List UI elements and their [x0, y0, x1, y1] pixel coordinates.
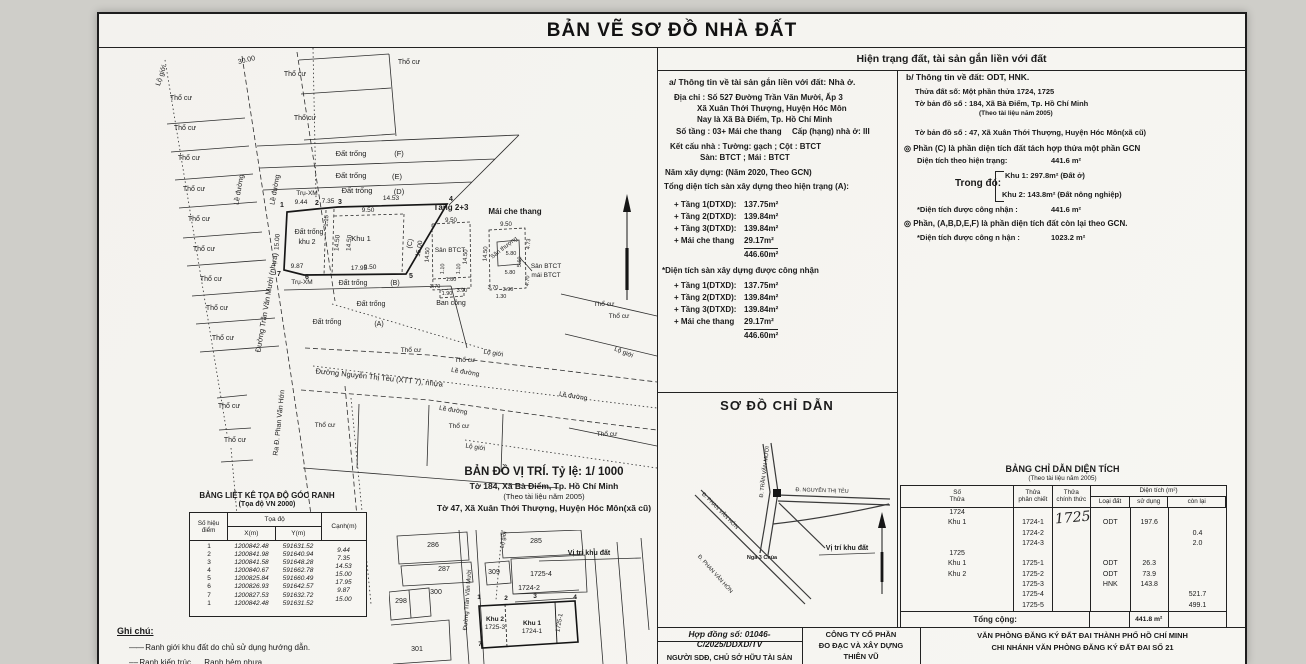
address-line-1: Địa chỉ : Số 527 Đường Trần Văn Mười, Ấp…: [674, 93, 843, 102]
floor-value: 137.75m²: [744, 281, 778, 293]
map-label: 9.50: [500, 222, 512, 228]
coord-row: 11200842.48591631.529.44: [190, 543, 366, 551]
map-label: Khu 1: [523, 620, 541, 627]
coord-cell: 1200842.48: [228, 600, 275, 608]
map-label: 5.80: [506, 251, 517, 257]
map-label: Đường Trần Văn Mười (nhựa): [253, 252, 279, 353]
map-label: 14.50: [482, 246, 489, 262]
area-table-row: 1725-3HNK143.8: [901, 580, 1226, 590]
floor-label: + Tầng 1(DTXD):: [674, 200, 744, 212]
map-label: Thổ cư: [193, 245, 216, 253]
area-table-cell: HNK: [1091, 580, 1130, 590]
map-label: 3.70: [488, 285, 499, 291]
khu2-detail: Khu 2: 143.8m² (Đất nông nghiệp): [1002, 190, 1122, 199]
map-label: mái BTCT: [531, 272, 560, 279]
area-table-subtitle: (Theo tài liệu năm 2005): [900, 475, 1225, 482]
map-label: Lề đường: [451, 365, 481, 378]
map-label: Thổ cư: [224, 436, 247, 444]
map-label: 286: [427, 542, 439, 549]
floor-value: 139.84m²: [744, 305, 778, 317]
map-label: Thổ cư: [398, 58, 421, 66]
map-label: (E): [392, 172, 403, 181]
map-label: 3.90: [457, 288, 468, 294]
map-label: Thổ cư: [170, 94, 193, 102]
floor-label: + Tầng 3(DTXD):: [674, 224, 744, 236]
area-table-cell: [1131, 508, 1169, 518]
area-table-cell: [1053, 529, 1091, 539]
col-point: Số hiệuđiểm: [190, 513, 228, 540]
col-toado: Tọa độ: [228, 513, 321, 527]
map-label: 3.90: [503, 287, 514, 293]
map-label: Thổ cư: [594, 300, 615, 308]
page-title: BẢN VẼ SƠ ĐỒ NHÀ ĐẤT: [99, 20, 1245, 42]
map-label: 7.35: [322, 198, 335, 205]
map-label: 1.80: [446, 277, 457, 283]
map-label: 14.50: [424, 247, 431, 263]
area-table-cell: [1091, 590, 1130, 600]
area-table-cell: [901, 590, 1014, 600]
road-nguyen-thi-teu: [778, 495, 890, 505]
office-line-1: VĂN PHÒNG ĐĂNG KÝ ĐẤT ĐAI THÀNH PHỐ HỒ C…: [920, 631, 1245, 640]
col-y: Y(m): [276, 527, 322, 540]
underline: [819, 553, 875, 555]
coord-table-header: Số hiệuđiểm Tọa độ X(m) Y(m) Cạnh(m): [190, 513, 366, 541]
dash-line-symbol: – –: [129, 658, 137, 664]
location-map-line-3: Tờ 47, Xã Xuân Thới Thượng, Huyện Hóc Mô…: [399, 503, 689, 513]
col-chinh-thuc: Thửachính thức: [1053, 486, 1091, 507]
map-label: Thổ cư: [200, 275, 223, 283]
area-table-cell: [1014, 508, 1052, 518]
map-label: Sân BTCT: [531, 263, 561, 270]
coord-cell: 9.87: [321, 587, 366, 595]
map-label: 1: [477, 594, 481, 601]
total-value: 446.60m²: [744, 248, 778, 259]
coord-cell: 591632.72: [275, 592, 321, 600]
area-table-cell: [1169, 549, 1226, 559]
area-table-cell: [1053, 539, 1091, 549]
map-label: (F): [394, 149, 404, 158]
map-label: Khu 2: [486, 616, 504, 623]
area-table-cell: 1725-3: [1014, 580, 1052, 590]
map-label: Đất trống: [336, 149, 367, 158]
map-label: 1.10: [456, 263, 463, 274]
map-label: Đường Nguyễn Thị Tẻu (XTT 7), nhựa: [315, 366, 444, 388]
north-arrow-icon: [623, 194, 631, 300]
owner-label: NGƯỜI SDĐ, CHỦ SỞ HỮU TÀI SẢN: [657, 653, 802, 662]
area-table-cell: ODT: [1091, 570, 1130, 580]
coord-table-title: BẢNG LIỆT KÊ TỌA ĐỘ GÓC RANH: [167, 491, 367, 500]
header-line: phân chiết: [1014, 497, 1051, 504]
footer-company-cell: CÔNG TY CỔ PHẦN ĐO ĐẠC VÀ XÂY DỰNG THIÊN…: [802, 630, 920, 661]
floor-value: 29.17m²: [744, 317, 774, 329]
area-table-cell: [1053, 559, 1091, 569]
col-x: X(m): [228, 527, 276, 540]
coord-table-rows: 11200842.48591631.529.4421200841.9859164…: [190, 541, 366, 616]
map-label: 5.60: [517, 256, 524, 267]
coord-cell: 5: [190, 575, 228, 583]
map-label: 1725-1: [555, 612, 564, 632]
scanned-land-survey-document: { "doc_title": "BẢN VẼ SƠ ĐỒ NHÀ ĐẤT", "…: [0, 0, 1306, 653]
coord-cell: 1200841.98: [228, 551, 275, 559]
map-label: Đất trống: [339, 278, 368, 287]
right-section-header: Hiện trạng đất, tài sản gắn liền với đất: [657, 48, 1246, 71]
recognized-label: *Diện tích được công nhận :: [917, 205, 1018, 214]
map-label: Lộ giới: [465, 443, 486, 453]
coord-cell: 3: [190, 559, 228, 567]
coord-cell: 15.00: [321, 571, 366, 579]
col-edge: Cạnh(m): [322, 513, 366, 540]
map-sheet-note: (Theo tài liệu năm 2005): [979, 110, 1053, 117]
coord-cell: 1200827.53: [228, 592, 275, 600]
legend-text: Ranh kiến trúc: [139, 658, 191, 664]
area-table-cell: 1725-4: [1014, 590, 1052, 600]
map-label: Sân BTCT: [435, 247, 465, 254]
recognized-label-2: *Diện tích được công n hận :: [917, 233, 1020, 242]
map-label: 300: [430, 589, 442, 596]
map-label: Đất trống: [357, 299, 386, 308]
map-label: Thổ cư: [455, 356, 476, 364]
map-label: 9.87: [291, 263, 304, 270]
map-label: 2: [504, 595, 508, 602]
area-table-cell: [901, 539, 1014, 549]
map-label: 285: [530, 538, 542, 545]
map-label: 301: [411, 646, 423, 653]
map-label: Thổ cư: [183, 185, 206, 193]
current-area-total: 446.60m²: [744, 248, 778, 259]
footer-office-cell: VĂN PHÒNG ĐĂNG KÝ ĐẤT ĐAI THÀNH PHỐ HỒ C…: [920, 631, 1245, 652]
leader-line: [779, 503, 825, 548]
year-line: Năm xây dựng: (Năm 2020, Theo GCN): [665, 168, 812, 177]
coord-table-subtitle: (Tọa độ VN 2000): [167, 501, 367, 508]
map-label: 9.50: [362, 207, 375, 214]
map-label: Thổ cư: [218, 402, 241, 410]
area-table-cell: [1131, 590, 1169, 600]
area-table-cell: 73.9: [1131, 570, 1169, 580]
office-line-2: CHI NHÁNH VĂN PHÒNG ĐĂNG KÝ ĐẤT ĐAI SỐ 2…: [920, 643, 1245, 652]
legend-line-1: —— Ranh giới khu đất do chủ sử dụng hướn…: [129, 643, 310, 652]
area-table-row: 1724-32.0: [901, 539, 1226, 549]
coord-cell: 7.35: [321, 555, 366, 563]
map-label: 17.95: [351, 265, 368, 272]
map-label: 5: [409, 273, 413, 280]
coord-cell: 2: [190, 551, 228, 559]
structure-line-2: Sàn: BTCT ; Mái : BTCT: [700, 153, 790, 162]
floors-line: Số tầng : 03+ Mái che thang: [676, 127, 782, 136]
plot-number-line: Thửa đất số: Một phần thửa 1724, 1725: [915, 87, 1054, 96]
area-table-cell: [1131, 549, 1169, 559]
map-label: Lề đường: [559, 389, 589, 402]
map-label: Mái che thang: [488, 207, 541, 216]
area-table-cell: [1169, 518, 1226, 528]
total-value: 441.8 m²: [1130, 612, 1169, 627]
map-label: 14.53: [383, 195, 400, 202]
area-table-cell: [1169, 559, 1226, 569]
map-label: Ngã 3 Chùa: [747, 555, 778, 561]
map-label: 15.00: [273, 233, 281, 250]
recognized-area-header: *Diện tích sàn xây dựng được công nhận: [662, 266, 819, 275]
map-label: 1: [280, 202, 284, 209]
coord-cell: 591631.52: [275, 543, 321, 551]
coord-cell: [321, 604, 366, 612]
map-label: 30.00: [237, 55, 256, 66]
coord-cell: 1200842.48: [228, 543, 275, 551]
floor-area-row: + Tầng 3(DTXD):139.84m²: [674, 305, 874, 317]
handwritten-plot-number: 1725: [1054, 508, 1091, 527]
area-table-cell: 197.6: [1131, 518, 1169, 528]
area-table-total-row: Tổng cộng: 441.8 m²: [901, 611, 1226, 627]
map-label: Khu 1: [351, 234, 371, 243]
area-table-row: 1725: [901, 549, 1226, 559]
area-table-cell: [1131, 539, 1169, 549]
area-table-row: 1725-5499.1: [901, 601, 1226, 611]
contract-number: Hợp đồng số: 01046-C/2025/DDXD/TV: [657, 629, 802, 649]
coord-cell: 591662.78: [275, 567, 321, 575]
area-table-cell: [1091, 529, 1130, 539]
floor-label: + Mái che thang: [674, 317, 744, 329]
map-label: 3: [338, 199, 342, 206]
location-map: 2862852873091725-4Vị trí khu đất29830017…: [389, 530, 657, 664]
area-table-cell: [1131, 601, 1169, 611]
area-table-cell: 143.8: [1131, 580, 1169, 590]
recognized-area-rows: + Tầng 1(DTXD):137.75m²+ Tầng 2(DTXD):13…: [674, 281, 874, 329]
map-label: 1725-4: [530, 571, 552, 578]
total-empty: [1169, 612, 1226, 627]
coord-cell: 591631.52: [275, 600, 321, 608]
map-label: Đ. PHAN VĂN HỚN: [696, 553, 734, 594]
map-label: 1724-1: [522, 628, 543, 635]
underline-leader: [539, 558, 641, 561]
area-table-cell: 1725-5: [1014, 601, 1052, 611]
address-line-3: Nay là Xã Bà Điểm, Tp. Hồ Chí Minh: [697, 115, 832, 124]
cadastral-plot: [391, 620, 451, 664]
part-c-heading: ◎ Phần (C) là phần diện tích đất tách hợ…: [904, 144, 1140, 153]
map-label: 14.50: [333, 234, 341, 251]
panel-vertical-divider: [897, 70, 898, 627]
coord-cell: 1200840.67: [228, 567, 275, 575]
plot-lines: [299, 54, 396, 140]
road-edge: [301, 390, 657, 430]
area-table-row: Khu 11725-1ODT26.3: [901, 559, 1226, 569]
map-label: Trụ-XM: [296, 190, 317, 197]
solid-line-symbol: ——: [129, 643, 143, 652]
panel-b-heading: b/ Thông tin về đất: ODT, HNK.: [906, 72, 1029, 82]
panel-a-heading: a/ Thông tin về tài sản gắn liền với đất…: [669, 77, 855, 87]
coord-cell: 6: [190, 583, 228, 591]
col-so-thua: SốThửa: [901, 486, 1014, 507]
floor-value: 29.17m²: [744, 236, 774, 248]
area-table-row: 1724-20.4: [901, 529, 1226, 539]
north-arrow-icon: [878, 512, 886, 594]
area-table-cell: Khu 1: [901, 559, 1014, 569]
floor-area-row: + Mái che thang29.17m²: [674, 317, 874, 329]
area-table-cell: [901, 601, 1014, 611]
current-area-header: Tổng diện tích sàn xây dựng theo hiện tr…: [664, 182, 849, 191]
floor-area-row: + Tầng 2(DTXD):139.84m²: [674, 212, 874, 224]
map-label: 298: [395, 598, 407, 605]
map-label: Thổ cư: [174, 124, 197, 132]
map-label: Đất trống: [295, 227, 324, 236]
coord-table: Số hiệuđiểm Tọa độ X(m) Y(m) Cạnh(m) 112…: [189, 512, 367, 617]
location-map-title: BẢN ĐỒ VỊ TRÍ. Tỷ lệ: 1/ 1000: [399, 466, 689, 478]
area-table-cell: 499.1: [1169, 601, 1226, 611]
map-label: Đất trống: [313, 317, 342, 326]
area-table-cell: 1725-1: [1014, 559, 1052, 569]
company-line-3: THIÊN VŨ: [802, 652, 920, 661]
floor-value: 137.75m²: [744, 200, 778, 212]
map-label: 2: [315, 200, 319, 207]
map-sheet-line-1: Tờ bản đồ số : 184, Xã Bà Điểm, Tp. Hồ C…: [915, 99, 1088, 108]
map-label: (C): [406, 238, 415, 249]
map-label: Thổ cư: [609, 312, 630, 320]
coord-cell: 1200825.84: [228, 575, 275, 583]
coord-cell: 14.53: [321, 563, 366, 571]
map-label: 3.70: [430, 284, 441, 290]
area-table-cell: [1169, 580, 1226, 590]
map-label: 4.73: [526, 238, 533, 249]
area-table-cell: [1091, 539, 1130, 549]
setback-line: [313, 48, 316, 198]
coord-cell: 591660.49: [275, 575, 321, 583]
company-line-1: CÔNG TY CỔ PHẦN: [802, 630, 920, 639]
area-table-cell: 1725: [901, 549, 1014, 559]
legend-title: Ghi chú:: [117, 626, 154, 636]
map-label: 1725-3: [485, 624, 506, 631]
map-label: 7: [478, 641, 482, 648]
header-line: Số hiệu: [190, 520, 227, 527]
col-loai-dat: Loại đất: [1091, 497, 1130, 507]
map-label: Lộ giới: [155, 64, 168, 87]
map-label: Lề đường: [231, 174, 245, 206]
floor-label: + Tầng 1(DTXD):: [674, 281, 744, 293]
area-table-header: SốThửa Thửaphân chiết Thửachính thức Diệ…: [901, 486, 1226, 508]
map-label: 1.15: [324, 214, 331, 227]
floor-label: + Tầng 2(DTXD):: [674, 212, 744, 224]
area-table-cell: 1724-2: [1014, 529, 1052, 539]
map-label: Tầng 2+3: [434, 203, 469, 212]
map-label: (A): [374, 321, 383, 328]
guide-map: Đ. TRẦN VĂN MƯỜIĐ. NGUYỄN THỊ TẺUĐ. PHAN…: [657, 392, 897, 627]
area-table-row: Khu 21725-2ODT73.9: [901, 570, 1226, 580]
map-sheet-line-2: Tờ bản đồ số : 47, Xã Xuân Thới Thượng, …: [915, 128, 1146, 137]
floor-area-row: + Tầng 1(DTXD):137.75m²: [674, 281, 874, 293]
location-map-line-2: (Theo tài liệu năm 2005): [399, 492, 689, 501]
area-table-cell: ODT: [1091, 559, 1130, 569]
address-line-2: Xã Xuân Thới Thượng, Huyện Hóc Môn: [697, 104, 847, 113]
map-label: 4: [449, 196, 453, 203]
recognized-value: 441.6 m²: [1051, 205, 1081, 214]
current-area-label: Diện tích theo hiện trạng:: [917, 156, 1007, 165]
map-label: 5.80: [505, 270, 516, 276]
floor-label: + Mái che thang: [674, 236, 744, 248]
area-table-cell: [1053, 580, 1091, 590]
recognized-value-2: 1023.2 m²: [1051, 233, 1085, 242]
area-table-cell: [901, 580, 1014, 590]
area-table-cell: 521.7: [1169, 590, 1226, 600]
coord-cell: 4: [190, 567, 228, 575]
map-label: Thổ cư: [212, 334, 235, 342]
map-label: Ban công: [436, 300, 466, 307]
footer-top-line: [657, 627, 1245, 628]
map-label: Đất trống: [336, 171, 367, 180]
company-line-2: ĐO ĐẠC VÀ XÂY DỰNG: [802, 641, 920, 650]
area-table-cell: ODT: [1091, 518, 1130, 528]
map-label: 9.50: [445, 218, 457, 224]
map-label: Thổ cư: [315, 421, 336, 429]
setback-line: [465, 440, 657, 468]
map-label: 7: [277, 271, 281, 278]
map-label: Trụ-XM: [291, 279, 312, 286]
map-label: Lộ giới: [483, 349, 504, 359]
area-table-cell: 26.3: [1131, 559, 1169, 569]
khu1-detail: Khu 1: 297.8m² (Đất ở): [1005, 171, 1085, 180]
total-empty: [1090, 612, 1130, 627]
floor-area-row: + Mái che thang29.17m²: [674, 236, 874, 248]
map-label: 1.90: [442, 291, 453, 297]
area-table: SốThửa Thửaphân chiết Thửachính thức Diệ…: [900, 485, 1227, 628]
floor-value: 139.84m²: [744, 212, 778, 224]
area-table-cell: [1091, 601, 1130, 611]
map-label: Thổ cư: [188, 215, 211, 223]
area-table-title: BẢNG CHỈ DẪN DIỆN TÍCH: [900, 464, 1225, 474]
legend-text: Ranh hẻm nhựa: [204, 658, 262, 664]
legend-line-2: – – Ranh kiến trúc Ranh hẻm nhựa: [129, 658, 262, 664]
area-table-cell: 0.4: [1169, 529, 1226, 539]
area-table-cell: [1053, 590, 1091, 600]
map-label: 309: [488, 569, 500, 576]
coord-cell: 17.95: [321, 579, 366, 587]
area-table-cell: [1169, 570, 1226, 580]
map-label: Thổ cư: [178, 154, 201, 162]
guide-map-labels: Đ. TRẦN VĂN MƯỜIĐ. NGUYỄN THỊ TẺUĐ. PHAN…: [696, 445, 869, 594]
structure-line-1: Kết cấu nhà : Tường: gạch ; Cột : BTCT: [670, 142, 821, 151]
area-table-cell: [1091, 549, 1130, 559]
map-label: 4: [573, 594, 577, 601]
map-label: 3: [533, 593, 537, 600]
header-line: điểm: [190, 527, 227, 534]
recognized-area-total: 446.60m²: [744, 329, 778, 340]
footer-contract-cell: Hợp đồng số: 01046-C/2025/DDXD/TV NGƯỜI …: [657, 629, 802, 664]
map-label: Thổ cư: [294, 114, 317, 122]
map-label: 1.30: [496, 294, 507, 300]
map-label: Ra Đ. Phan Văn Hớn: [273, 390, 287, 457]
map-label: Thổ cư: [401, 346, 422, 354]
area-table-cell: Khu 1: [901, 518, 1014, 528]
coord-cell: 1: [190, 600, 228, 608]
map-label: Thổ cư: [206, 304, 229, 312]
map-label: 1.10: [440, 263, 447, 274]
coord-cell: 591648.28: [275, 559, 321, 567]
col-phan-chiet: Thửaphân chiết: [1014, 486, 1052, 507]
map-label: 4.70: [525, 275, 532, 286]
current-area-rows: + Tầng 1(DTXD):137.75m²+ Tầng 2(DTXD):13…: [674, 200, 874, 248]
floor-area-row: + Tầng 2(DTXD):139.84m²: [674, 293, 874, 305]
coord-cell: 15.00: [321, 596, 366, 604]
coord-cell: 9.44: [321, 547, 366, 555]
map-label: Đường Trần Văn Mười: [463, 569, 473, 630]
area-table-cell: [1053, 601, 1091, 611]
coord-cell: 591642.57: [275, 583, 321, 591]
location-map-line-1: Tờ 184, Xã Bà Điểm, Tp. Hồ Chí Minh: [399, 481, 689, 491]
setback-line: [332, 304, 491, 351]
floor-label: + Tầng 3(DTXD):: [674, 305, 744, 317]
map-label: (B): [390, 280, 399, 287]
coord-cell: 591640.94: [275, 551, 321, 559]
coord-cell: 1: [190, 543, 228, 551]
coord-cell: 7: [190, 592, 228, 600]
floor-area-row: + Tầng 3(DTXD):139.84m²: [674, 224, 874, 236]
header-line: chính thức: [1053, 497, 1090, 504]
floor-value: 139.84m²: [744, 224, 778, 236]
